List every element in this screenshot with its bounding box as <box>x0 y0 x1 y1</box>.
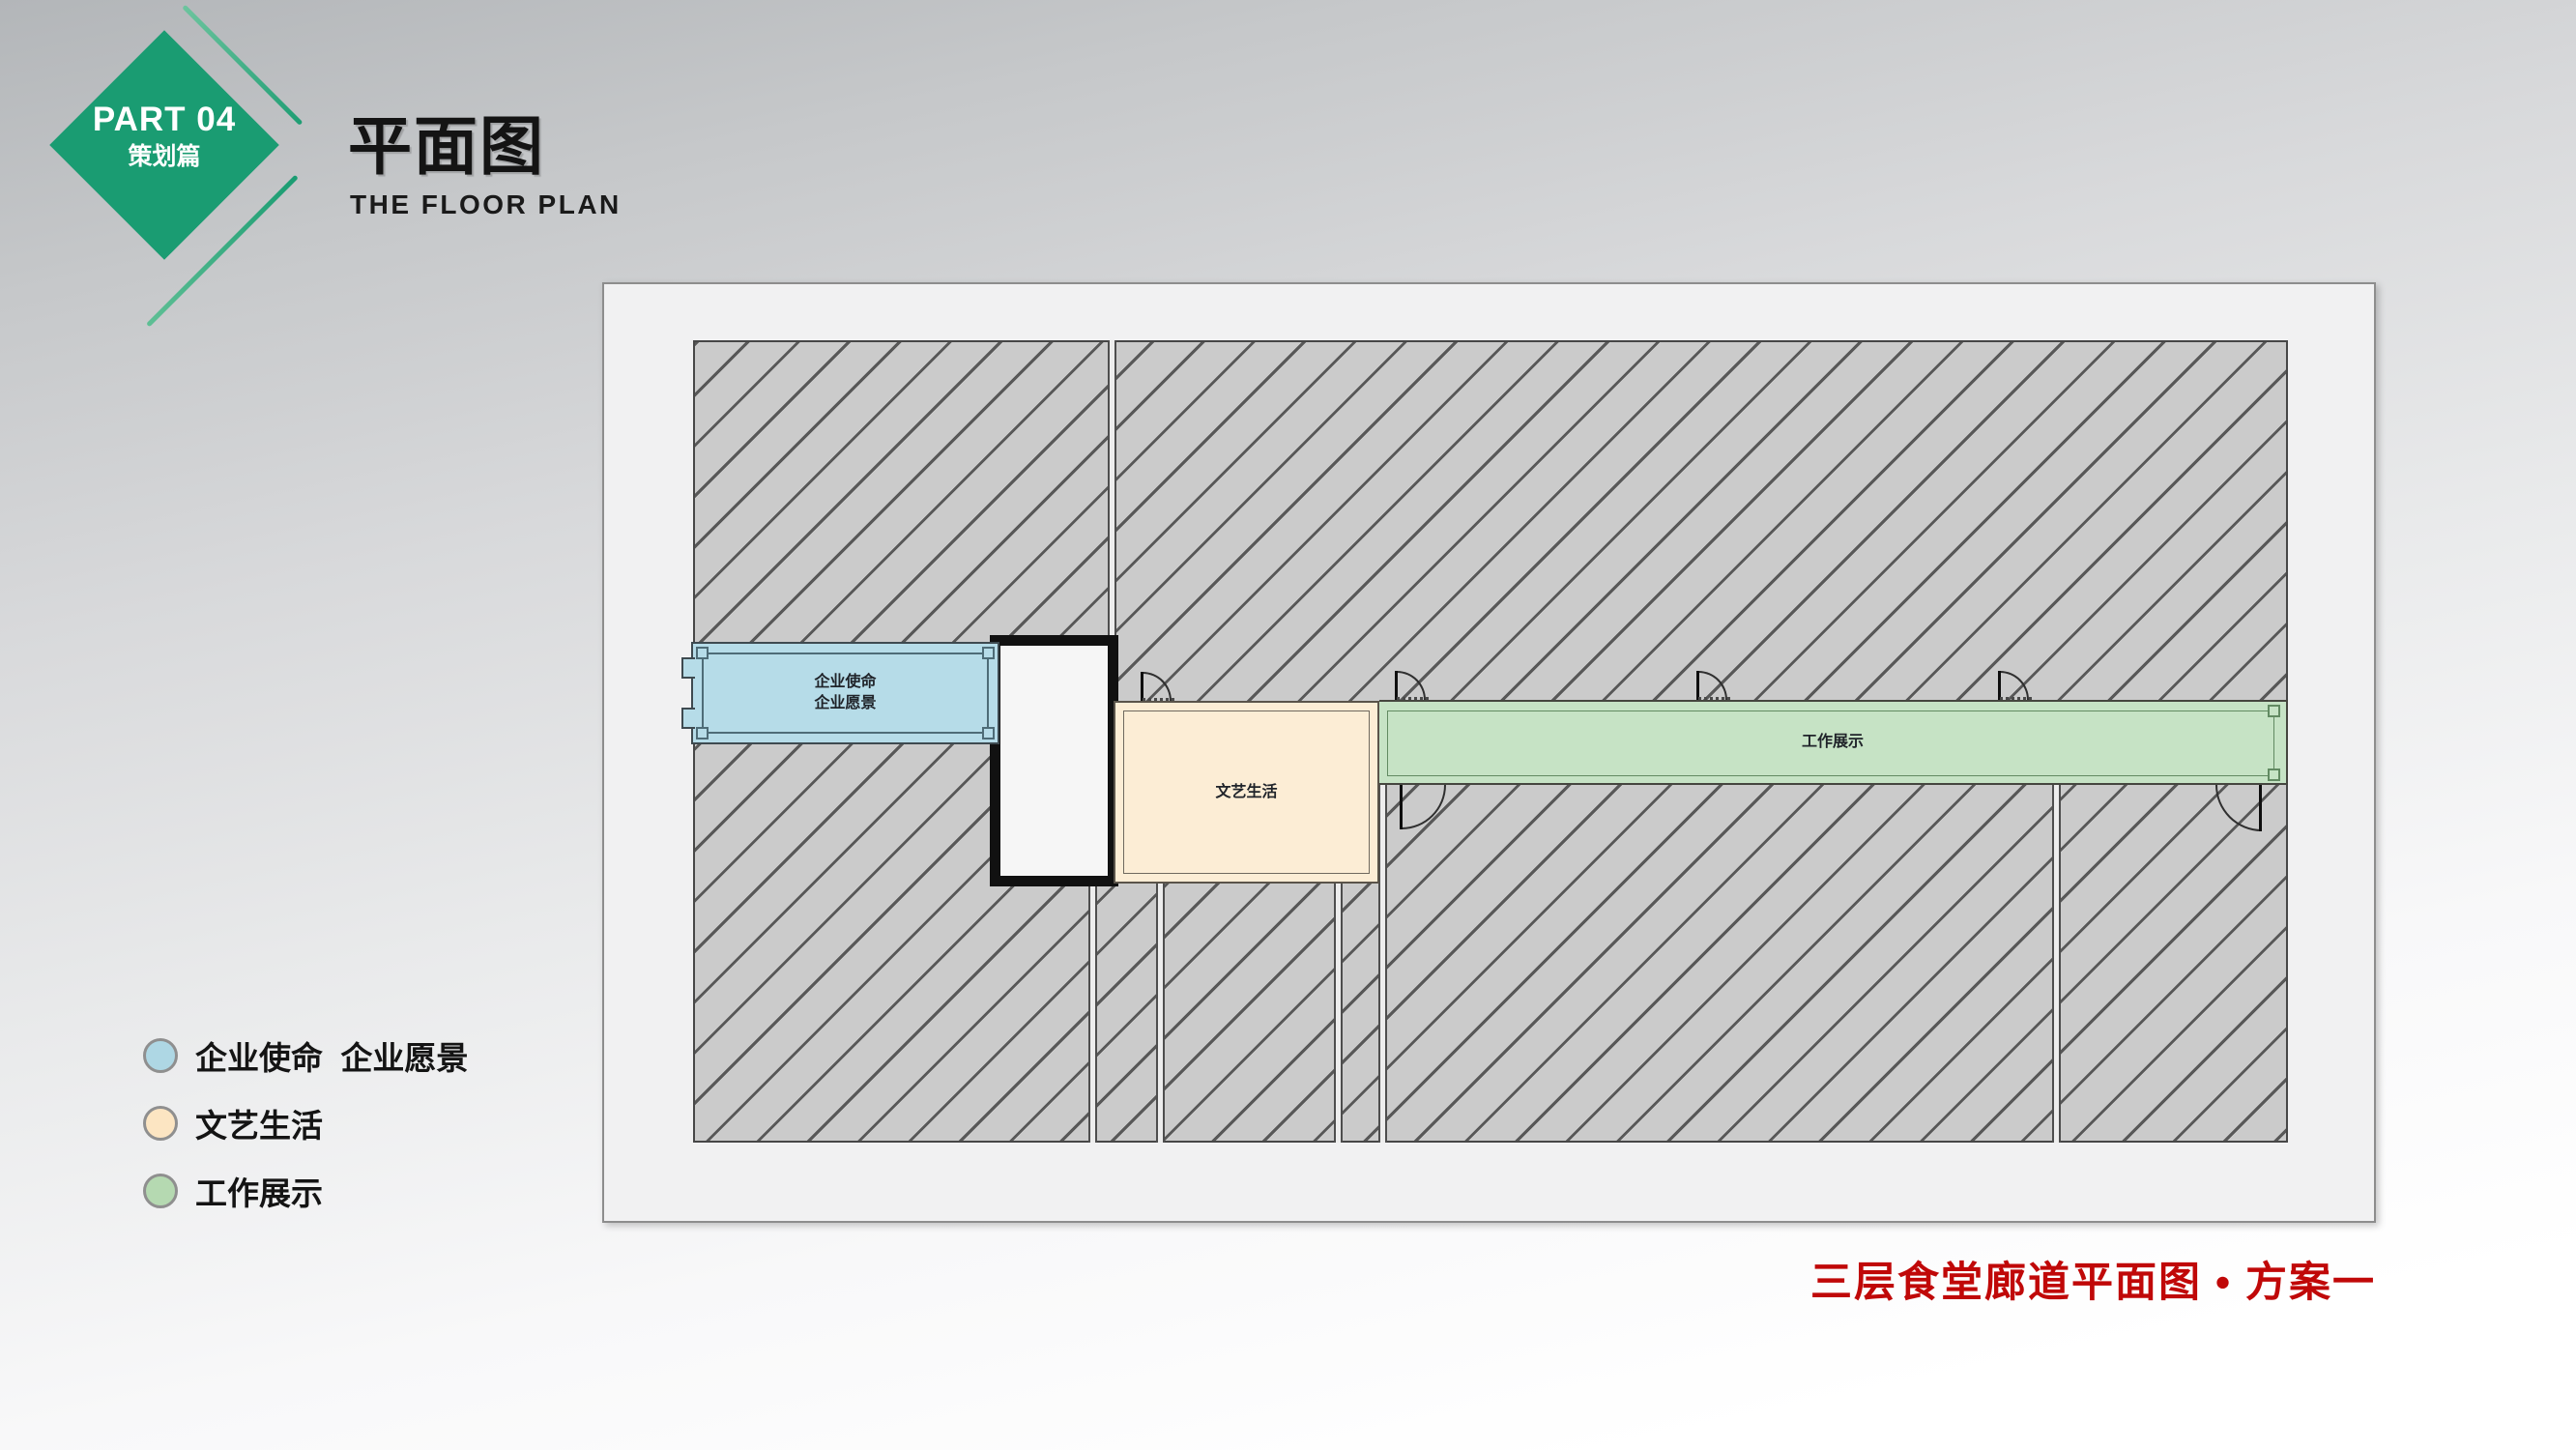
legend-swatch-circle <box>143 1174 178 1208</box>
corridor-work-display: 工作展示 <box>1379 700 2288 785</box>
door-threshold <box>2000 697 2032 700</box>
wall-joint-line <box>1108 340 1116 639</box>
room-inner-outline <box>702 652 989 734</box>
plan-caption: 三层食堂廊道平面图 • 方案一 <box>1810 1249 2376 1309</box>
legend-swatch-circle <box>143 1038 178 1073</box>
wall-joint-line <box>1156 884 1165 1143</box>
floor-plan-panel: 企业使命 企业愿景 文艺生活 工作展示 <box>602 282 2376 1223</box>
wall-joint-line <box>1334 884 1343 1143</box>
door-threshold <box>1698 697 1730 700</box>
wall-joint-line <box>1088 884 1097 1143</box>
legend-item-work: 工作展示 <box>143 1168 468 1214</box>
legend-swatch-circle <box>143 1106 178 1141</box>
door-leaf <box>1696 671 1699 700</box>
part-badge-text: PART 04 策划篇 <box>39 101 290 174</box>
door-leaf <box>2259 785 2262 831</box>
legend-item-mission: 企业使命 企业愿景 <box>143 1032 468 1079</box>
door-leaf <box>1998 671 2001 700</box>
wall-joint-line <box>1378 785 1387 1143</box>
legend-item-label: 企业使命 企业愿景 <box>195 1032 468 1079</box>
door-threshold <box>1397 697 1429 700</box>
room-inner-outline <box>1123 710 1370 874</box>
door-threshold <box>1143 698 1174 701</box>
legend-item-label: 文艺生活 <box>195 1100 323 1146</box>
section-name-label: 策划篇 <box>39 139 290 174</box>
legend-item-label: 工作展示 <box>195 1168 323 1214</box>
wall-notch <box>982 647 995 659</box>
door-leaf <box>1141 672 1143 701</box>
page-title: 平面图 <box>348 95 545 188</box>
legend: 企业使命 企业愿景 文艺生活 工作展示 <box>143 1032 468 1214</box>
door-leaf <box>1400 785 1403 829</box>
shaft-room <box>990 635 1118 886</box>
wall-joint-line <box>2052 785 2061 1143</box>
door-opening-tab <box>681 657 695 679</box>
page-subtitle: THE FLOOR PLAN <box>350 189 622 220</box>
wall-notch <box>696 727 709 739</box>
legend-item-art: 文艺生活 <box>143 1100 468 1146</box>
door-opening-tab <box>681 708 695 729</box>
room-art-life: 文艺生活 <box>1114 701 1379 884</box>
slide: PART 04 策划篇 平面图 THE FLOOR PLAN 企业使命 <box>0 0 2576 1450</box>
door-leaf <box>1395 671 1398 700</box>
room-mission-vision: 企业使命 企业愿景 <box>691 642 999 744</box>
wall-notch <box>2268 768 2280 781</box>
wall-notch <box>696 647 709 659</box>
wall-notch <box>982 727 995 739</box>
part-number-label: PART 04 <box>39 101 290 139</box>
corridor-inner-outline <box>1387 710 2274 776</box>
wall-notch <box>2268 705 2280 717</box>
